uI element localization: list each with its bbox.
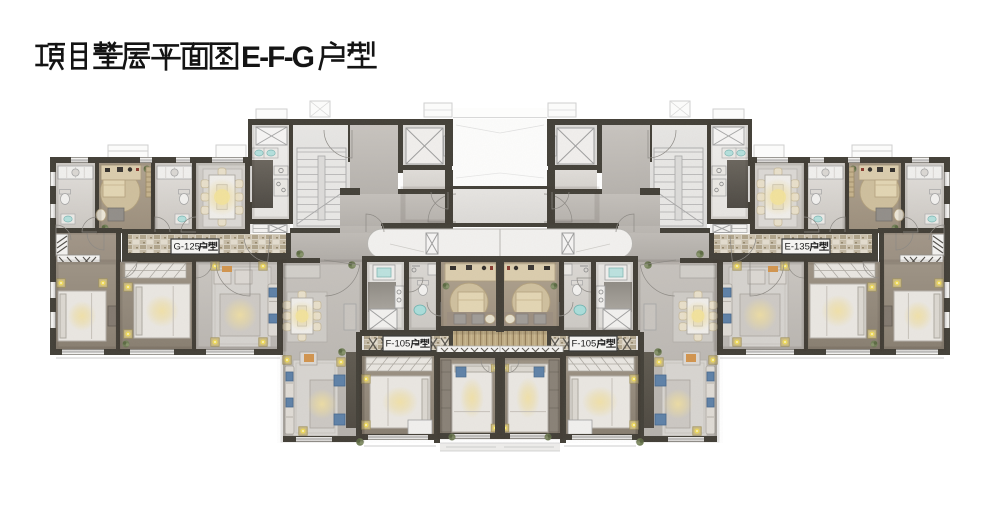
svg-text:F-105: F-105 bbox=[386, 339, 411, 350]
svg-text:E-135: E-135 bbox=[785, 242, 810, 253]
svg-text:E-F-G: E-F-G bbox=[241, 41, 315, 74]
svg-text:G-125: G-125 bbox=[174, 242, 200, 253]
svg-text:F-105: F-105 bbox=[572, 339, 597, 350]
